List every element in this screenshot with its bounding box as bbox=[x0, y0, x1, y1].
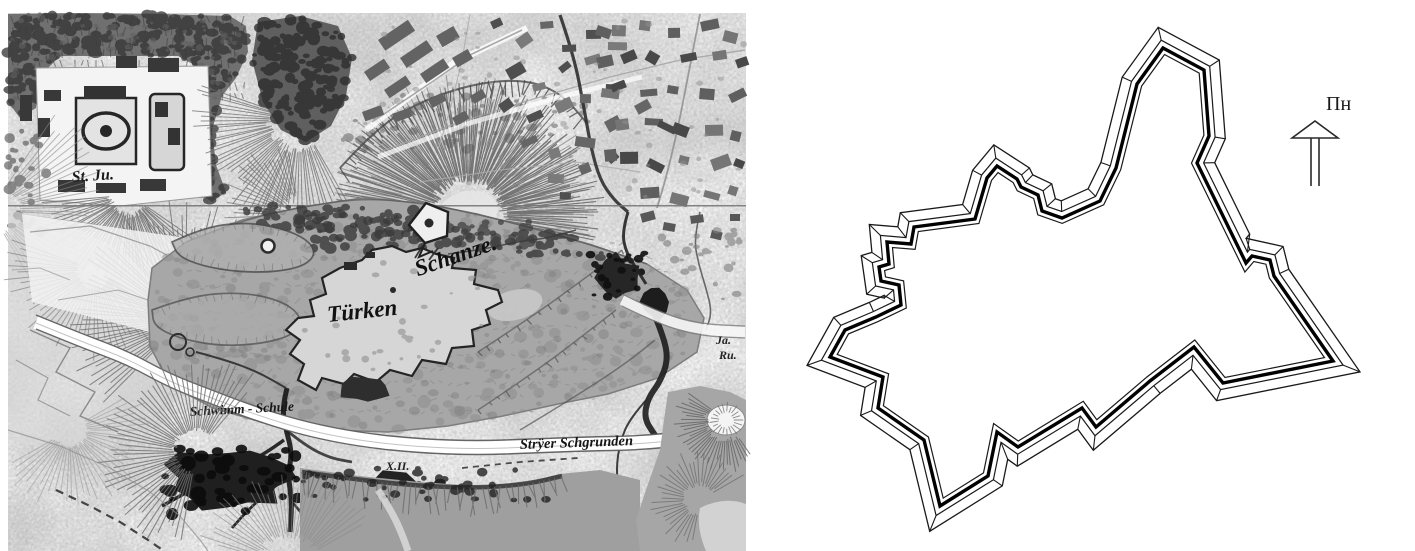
svg-text:St. Ju.: St. Ju. bbox=[71, 166, 114, 186]
svg-text:Ja.: Ja. bbox=[715, 333, 731, 347]
svg-text:X.II.: X.II. bbox=[385, 459, 409, 473]
svg-text:Пн: Пн bbox=[1326, 93, 1351, 115]
svg-text:Ru.: Ru. bbox=[718, 348, 737, 362]
